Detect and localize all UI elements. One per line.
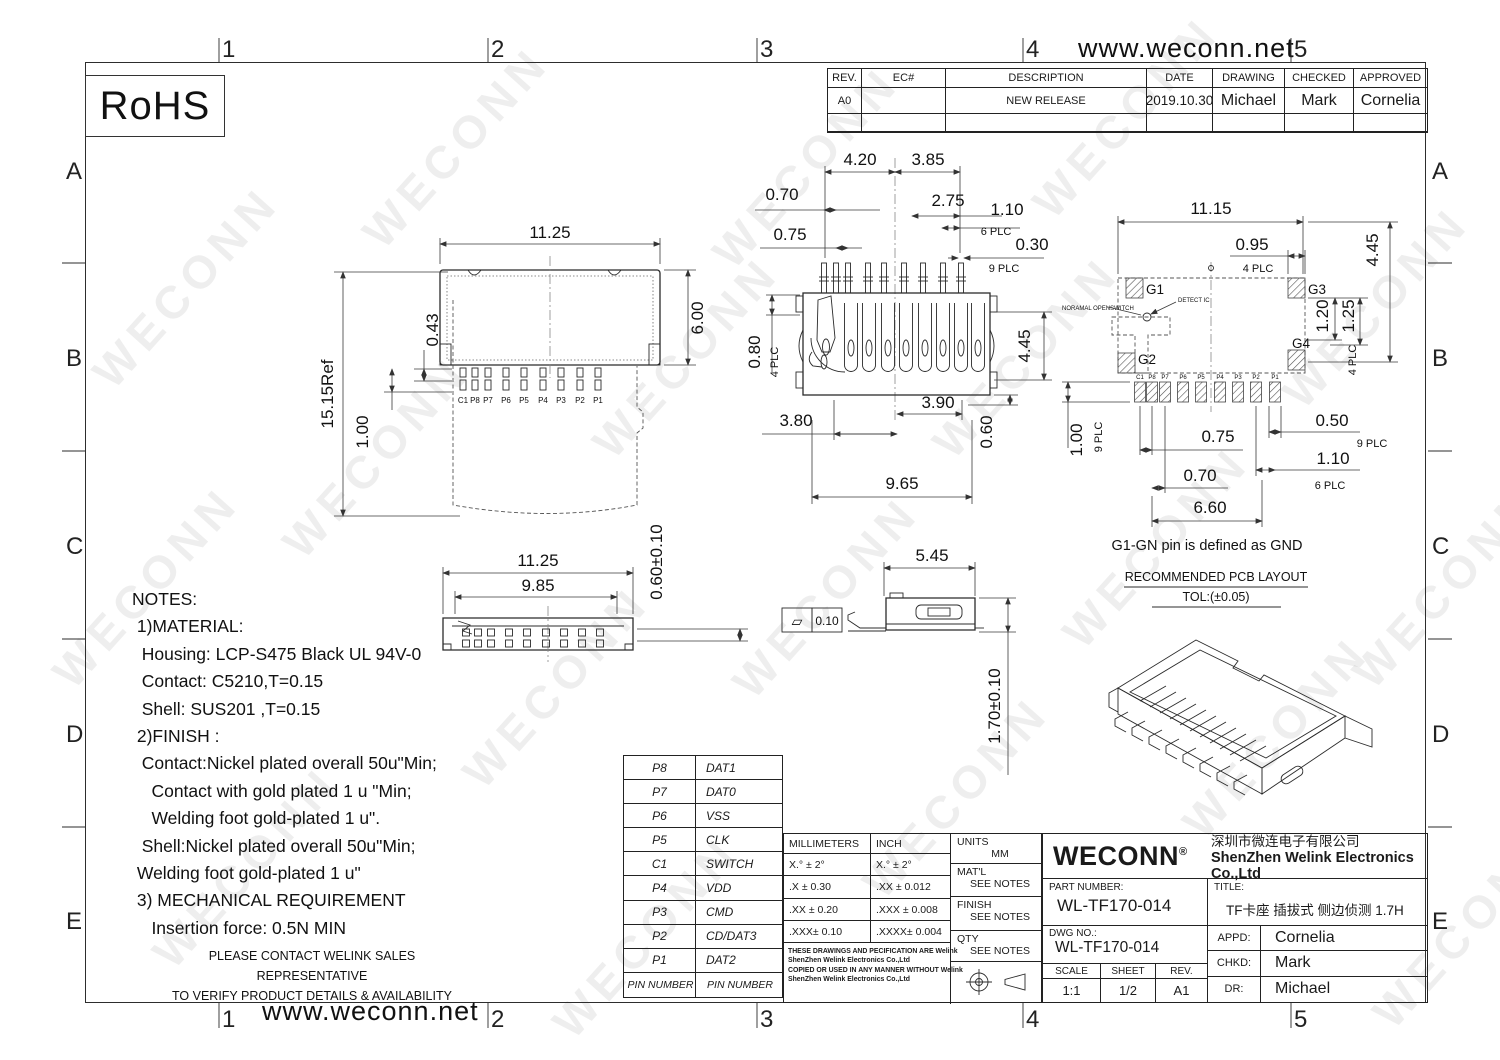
switch-label: NORAMAL OPENSWITCH xyxy=(1062,306,1134,312)
pad-label: P2 xyxy=(1252,375,1260,381)
gnd-pad-label: G3 xyxy=(1308,282,1326,297)
dim-label: 15.15Ref xyxy=(318,359,337,428)
drawing-canvas: 11.25 6.00 C1 xyxy=(0,0,1500,1060)
dim-label: 0.70 xyxy=(1183,466,1216,485)
pin-label: P1 xyxy=(593,396,603,405)
pin-label: C1 xyxy=(458,396,469,405)
dim-qualifier: 4 PLC xyxy=(769,347,781,378)
dim-label: 1.20 xyxy=(1313,299,1332,332)
pin-label: P4 xyxy=(538,396,548,405)
pad-label: P3 xyxy=(1234,375,1242,381)
dim-label: 0.60±0.10 xyxy=(647,524,666,600)
dim-label: 2.75 xyxy=(931,191,964,210)
dim-label: 0.95 xyxy=(1235,235,1268,254)
pad-label: P4 xyxy=(1216,375,1224,381)
isometric-view xyxy=(1109,640,1372,795)
pin-label: P7 xyxy=(483,396,493,405)
dim-label: 3.90 xyxy=(921,393,954,412)
card-outline xyxy=(453,300,643,514)
dim-label: 3.85 xyxy=(911,150,944,169)
flatness-value: 0.10 xyxy=(815,614,839,628)
pcb-layout-tolerance: TOL:(±0.05) xyxy=(1182,590,1249,604)
bottom-pads xyxy=(463,629,604,647)
dim-label: 0.70 xyxy=(765,185,798,204)
dim-qualifier: 9 PLC xyxy=(1093,422,1105,453)
pad-label: P6 xyxy=(1179,375,1187,381)
dim-label: 0.60 xyxy=(977,415,996,448)
dim-qualifier: 6 PLC xyxy=(1315,480,1346,492)
dim-label: 9.65 xyxy=(885,474,918,493)
dim-qualifier: 6 PLC xyxy=(981,226,1012,238)
dim-qualifier: 4 PLC xyxy=(1243,263,1274,275)
front-view: 4.20 3.85 0.70 2.75 1.10 6 PLC 0.75 0.30… xyxy=(745,150,1052,504)
grid-ticks xyxy=(62,38,1452,1028)
bottom-view: 11.25 9.85 0.6 xyxy=(443,524,748,662)
dim-label: 1.10 xyxy=(990,200,1023,219)
pad-label: C1 xyxy=(1136,375,1144,381)
gnd-pad-label: G4 xyxy=(1292,336,1311,351)
dim-label: 6.00 xyxy=(688,301,707,334)
dim-label: 1.00 xyxy=(353,415,372,448)
pad-label: P1 xyxy=(1271,375,1279,381)
dim-label: 11.15 xyxy=(1190,199,1231,218)
pin-leads xyxy=(460,368,601,390)
top-view: 11.25 6.00 C1 xyxy=(318,223,707,516)
dim-label: 4.45 xyxy=(1015,329,1034,362)
dim-label: 1.70±0.10 xyxy=(985,668,1004,744)
pad-label: P5 xyxy=(1197,375,1205,381)
pcb-layout-view: 11.15 G1 G3 G2 G4 0.95 4 PLC 4.45 xyxy=(1062,199,1398,607)
dim-label: 1.25 xyxy=(1339,299,1358,332)
dim-label: 1.10 xyxy=(1316,449,1349,468)
dim-qualifier: 9 PLC xyxy=(1357,438,1388,450)
dim-label: 11.25 xyxy=(517,551,558,570)
flatness-callout: ▱ 0.10 xyxy=(782,608,842,632)
gnd-note: G1-GN pin is defined as GND xyxy=(1112,538,1303,554)
pin-label: P6 xyxy=(501,396,511,405)
dim-label: 11.25 xyxy=(529,223,570,242)
detect-ic-label: DETECT IC xyxy=(1178,298,1210,304)
dim-label: 0.30 xyxy=(1015,235,1048,254)
dim-label: 4.20 xyxy=(843,150,876,169)
gnd-pad-label: G2 xyxy=(1138,352,1156,367)
dim-label: 0.75 xyxy=(773,225,806,244)
dim-label: 1.00 xyxy=(1067,423,1086,456)
flatness-icon: ▱ xyxy=(792,613,803,629)
dim-label: 9.85 xyxy=(521,576,554,595)
dim-label: 4.45 xyxy=(1363,233,1382,266)
pin-label: P3 xyxy=(556,396,566,405)
pin-label: P8 xyxy=(470,396,480,405)
dim-label: 5.45 xyxy=(915,546,948,565)
pad-label: P8 xyxy=(1148,375,1156,381)
pcb-pads xyxy=(1135,382,1281,402)
solder-pins xyxy=(819,263,966,293)
pin-label: P2 xyxy=(575,396,585,405)
pcb-layout-title: RECOMMENDED PCB LAYOUT xyxy=(1125,570,1308,584)
dim-label: 0.43 xyxy=(423,313,442,346)
dim-label: 0.80 xyxy=(745,335,764,368)
dim-label: 6.60 xyxy=(1193,498,1226,517)
detect-switch-lever xyxy=(809,296,845,372)
pad-label: P7 xyxy=(1161,375,1169,381)
side-view: 5.45 ▱ 0.10 1.70±0.10 xyxy=(782,546,1016,775)
engineering-drawing-sheet: WECONN WECONN WECONN WECONN WECONN WECON… xyxy=(0,0,1500,1060)
dim-qualifier: 9 PLC xyxy=(989,263,1020,275)
dim-label: 0.75 xyxy=(1201,427,1234,446)
dim-qualifier: 4 PLC xyxy=(1347,345,1359,376)
contact-slots xyxy=(845,303,985,372)
dim-label: 3.80 xyxy=(779,411,812,430)
dim-label: 0.50 xyxy=(1315,411,1348,430)
gnd-pad-label: G1 xyxy=(1146,282,1164,297)
pin-label: P5 xyxy=(519,396,529,405)
